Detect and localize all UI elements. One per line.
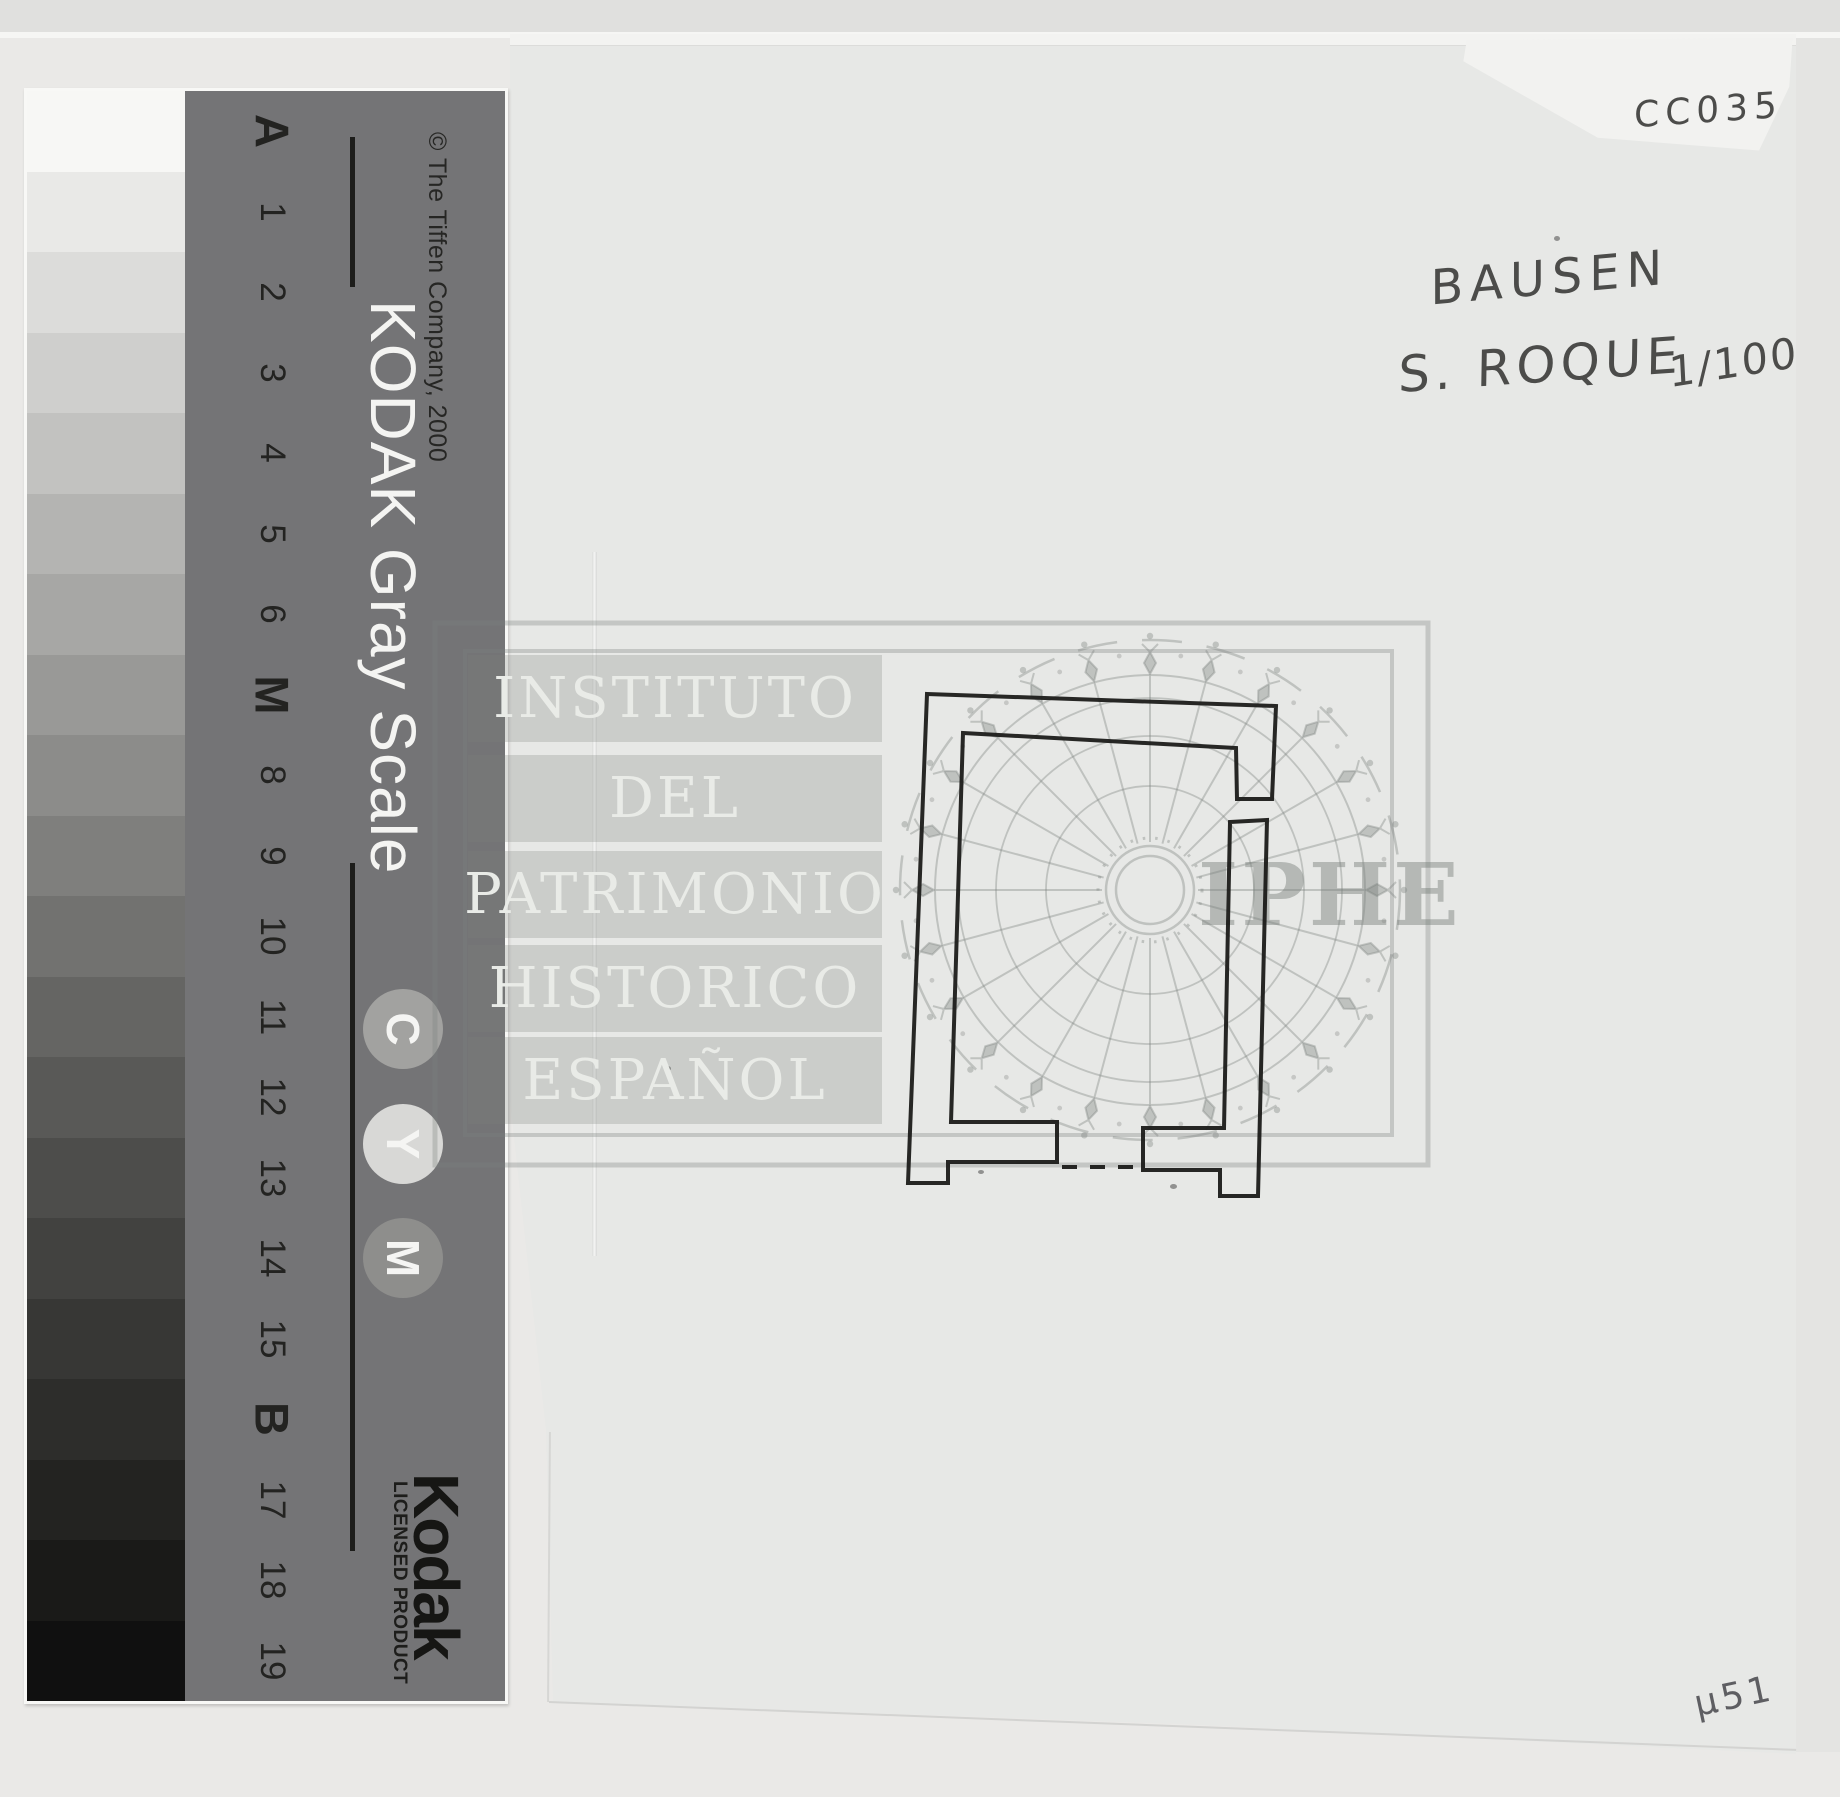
kodak-gray-scale-strip: KODAK Gray Scale © The Tiffen Company, 2… [24,88,508,1704]
gray-patch [27,1540,185,1621]
gray-patch [27,977,185,1058]
cym-letter: C [376,1012,430,1045]
patch-label: 12 [252,1078,292,1117]
strip-label-panel: KODAK Gray Scale © The Tiffen Company, 2… [185,91,505,1701]
gray-patch [27,735,185,816]
ink-speck [1170,1184,1177,1189]
gray-patch [27,1460,185,1541]
dust-speck [664,1066,671,1071]
patch-label: 19 [252,1641,292,1680]
cym-letter: M [376,1239,430,1277]
gray-patch [27,574,185,655]
strip-copyright: © The Tiffen Company, 2000 [424,132,449,462]
strip-title: KODAK Gray Scale [361,300,425,874]
scanner-mat-right-band [1796,38,1840,1752]
kodak-logo: Kodak [404,1473,468,1659]
gray-patch [27,91,185,172]
patch-label: 18 [252,1561,292,1600]
patch-label: 17 [252,1480,292,1519]
cym-circle-y: Y [363,1104,443,1184]
patch-label: 9 [252,846,292,865]
patch-label: 8 [252,765,292,784]
patch-label: 2 [252,282,292,301]
gray-patch [27,1057,185,1138]
patch-label: 5 [252,524,292,543]
gray-patch [27,1621,185,1702]
gray-patch [27,1218,185,1299]
cym-circle-m: M [363,1218,443,1298]
scanner-mat-top-band [0,0,1840,32]
gray-patch [27,1299,185,1380]
gray-patch [27,655,185,736]
patch-label: A [245,114,300,148]
patch-label: B [245,1402,300,1436]
dust-speck [1554,236,1560,241]
gray-patch-column [27,91,185,1701]
patch-label: 13 [252,1158,292,1197]
strip-rule-top [350,137,355,287]
ink-speck [978,1170,984,1174]
gray-patch [27,1138,185,1219]
gray-patch [27,413,185,494]
patch-label: M [245,675,300,714]
gray-patch [27,896,185,977]
strip-rule-bottom [350,863,355,1551]
kodak-licensed-product-label: LICENSED PRODUCT [390,1481,409,1684]
paper-crease [592,552,597,1256]
gray-patch [27,494,185,575]
patch-label: 10 [252,917,292,956]
gray-patch [27,252,185,333]
patch-label: 4 [252,443,292,462]
patch-label: 1 [252,202,292,221]
patch-label: 15 [252,1319,292,1358]
gray-patch [27,172,185,253]
gray-patch [27,816,185,897]
gray-patch [27,1379,185,1460]
patch-label: 3 [252,363,292,382]
cym-circle-c: C [363,989,443,1069]
patch-label: 11 [252,998,292,1034]
patch-label: 14 [252,1239,292,1278]
gray-patch [27,333,185,414]
patch-label: 6 [252,604,292,623]
cym-letter: Y [376,1129,430,1160]
scanned-archive-photograph: { "scan": { "archive_code": "CC035", "ti… [0,0,1840,1792]
